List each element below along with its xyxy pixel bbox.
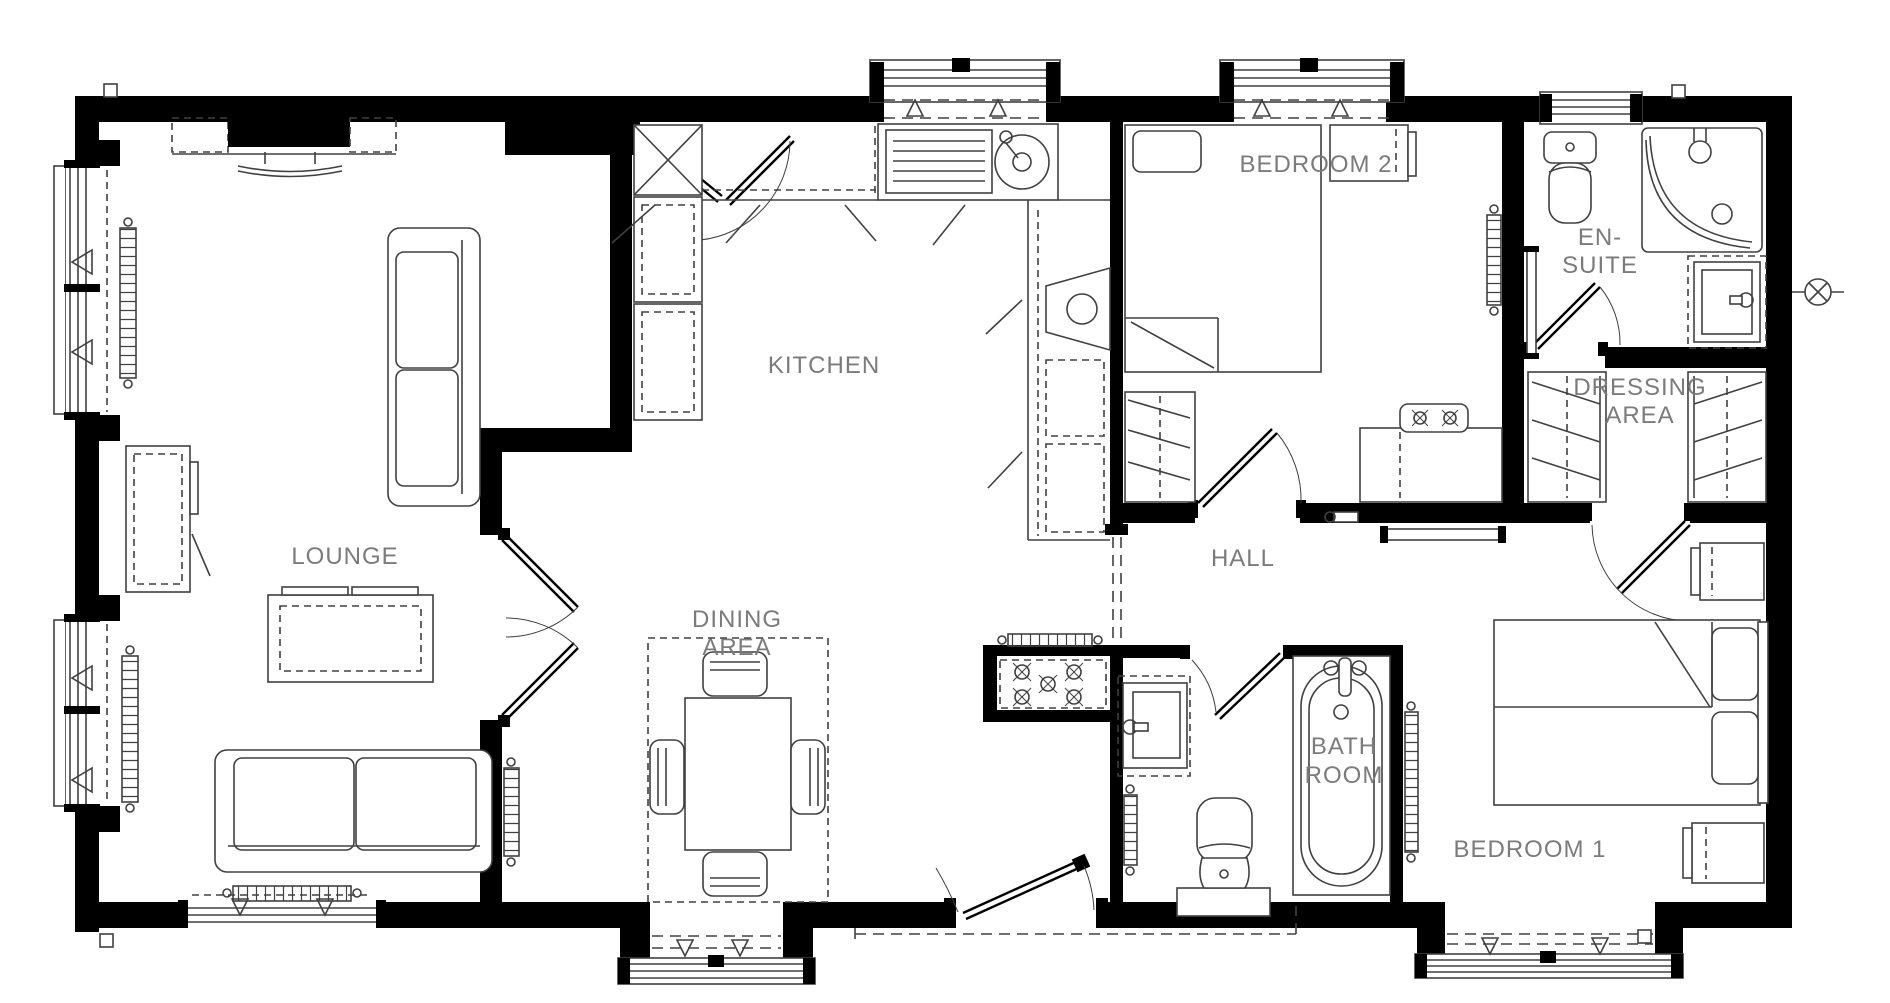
label-dressing-1: DRESSING <box>1573 374 1706 401</box>
label-dining-2: AREA <box>702 634 771 661</box>
bedroom1-bed <box>1494 620 1768 805</box>
bedroom1-bedside-cabinet <box>1683 823 1764 883</box>
vent-triangle-icon <box>1592 938 1608 954</box>
window-bedroom2 <box>1220 58 1404 122</box>
window-kitchen <box>870 58 1060 122</box>
label-bedroom1: BEDROOM 1 <box>1453 836 1606 863</box>
room-hall <box>1123 523 1403 645</box>
bedroom1-bedside-cabinet <box>1691 543 1764 600</box>
radiator <box>122 646 138 812</box>
vent-icon <box>1638 930 1651 943</box>
socket-icon <box>1442 410 1458 426</box>
cylinder-icon <box>1039 675 1057 693</box>
radiator <box>223 886 361 901</box>
headboard <box>1758 622 1768 803</box>
ensuite-shower <box>1642 128 1762 252</box>
dining-chair <box>650 740 684 814</box>
bathroom-toilet <box>1197 798 1252 888</box>
radiator <box>1124 785 1137 875</box>
radiator <box>1487 205 1501 315</box>
hall-sliding-door-leaf <box>1380 526 1506 543</box>
socket-icon <box>1412 410 1428 426</box>
label-bathroom-2: ROOM <box>1305 762 1384 789</box>
floor-plan: LOUNGE KITCHEN DINING AREA BEDROOM 2 EN-… <box>0 0 1890 1003</box>
vent-triangle-icon <box>1482 938 1498 954</box>
floor-plan-drawing: LOUNGE KITCHEN DINING AREA BEDROOM 2 EN-… <box>0 0 1890 1003</box>
external-light-icon <box>1792 279 1844 305</box>
cylinder-icon <box>1065 663 1083 681</box>
window-left-lower <box>54 614 107 812</box>
window-left-upper <box>54 160 107 420</box>
label-dressing-2: AREA <box>1605 402 1674 429</box>
ensuite-basin <box>1688 256 1766 348</box>
cylinder-icon <box>1065 688 1083 706</box>
pillow-icon <box>1133 131 1201 172</box>
cylinder-icon <box>1013 688 1031 706</box>
kitchen-sink <box>878 124 1058 200</box>
radiator <box>1405 702 1418 862</box>
vent-icon <box>1672 85 1685 98</box>
coffee-table <box>268 587 433 682</box>
label-ensuite-1: EN- <box>1578 224 1622 251</box>
label-bathroom-1: BATH <box>1311 733 1377 760</box>
radiator <box>998 634 1102 646</box>
kitchen-tall-units <box>634 125 702 420</box>
bathroom-basin <box>1118 676 1190 776</box>
room-dining-area <box>502 452 1110 902</box>
label-ensuite-2: SUITE <box>1562 252 1638 279</box>
ensuite-towel-rail <box>1524 246 1539 359</box>
window-ensuite <box>1540 92 1642 124</box>
cylinder-icon <box>1013 663 1031 681</box>
label-lounge: LOUNGE <box>291 543 398 570</box>
hall-passage-opening <box>1113 537 1121 643</box>
spout-icon <box>1339 658 1351 696</box>
vent-icon <box>104 84 117 97</box>
label-kitchen: KITCHEN <box>768 352 880 379</box>
sofa-two-seater-side <box>388 228 480 506</box>
vent-icon <box>100 934 113 947</box>
radiator <box>120 218 136 388</box>
label-hall: HALL <box>1211 545 1275 572</box>
radiator <box>504 758 519 866</box>
label-bedroom2: BEDROOM 2 <box>1239 151 1392 178</box>
dining-chair <box>791 740 825 814</box>
bedroom2-wardrobe <box>1125 392 1195 502</box>
label-dining-1: DINING <box>692 606 782 633</box>
pillow-icon <box>1712 628 1758 700</box>
bathroom-toilet-plinth <box>1177 888 1270 916</box>
sofa-two-seater-front <box>215 750 492 872</box>
ensuite-toilet <box>1544 132 1596 223</box>
pillow-icon <box>1712 712 1758 784</box>
dining-chair <box>703 852 767 896</box>
